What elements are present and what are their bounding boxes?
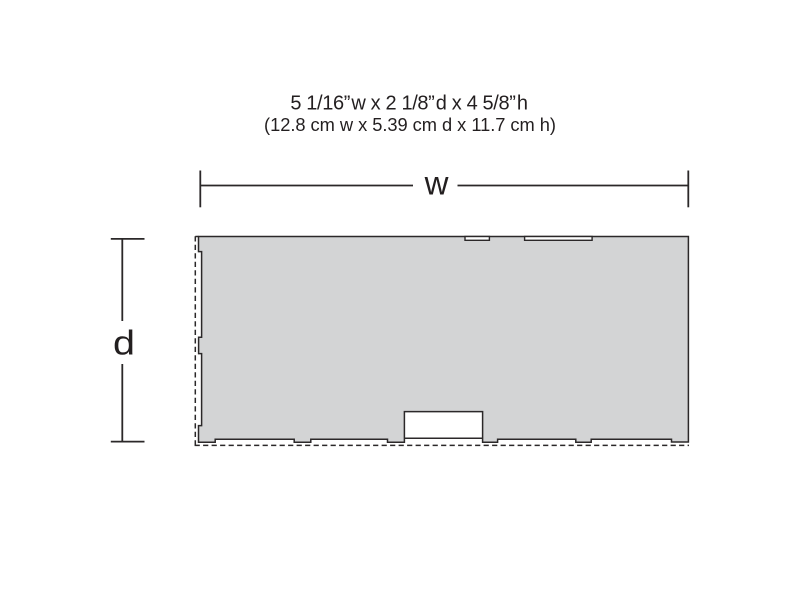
svg-text:w: w [424, 165, 449, 202]
svg-text:d: d [113, 324, 135, 362]
svg-text:5 1/16” w x 2 1/8” d x 4 5/8”: 5 1/16” w x 2 1/8” d x 4 5/8” h [290, 93, 527, 115]
svg-text:(12.8 cm w x 5.39 cm d x 11.7: (12.8 cm w x 5.39 cm d x 11.7 cm h) [264, 114, 556, 135]
